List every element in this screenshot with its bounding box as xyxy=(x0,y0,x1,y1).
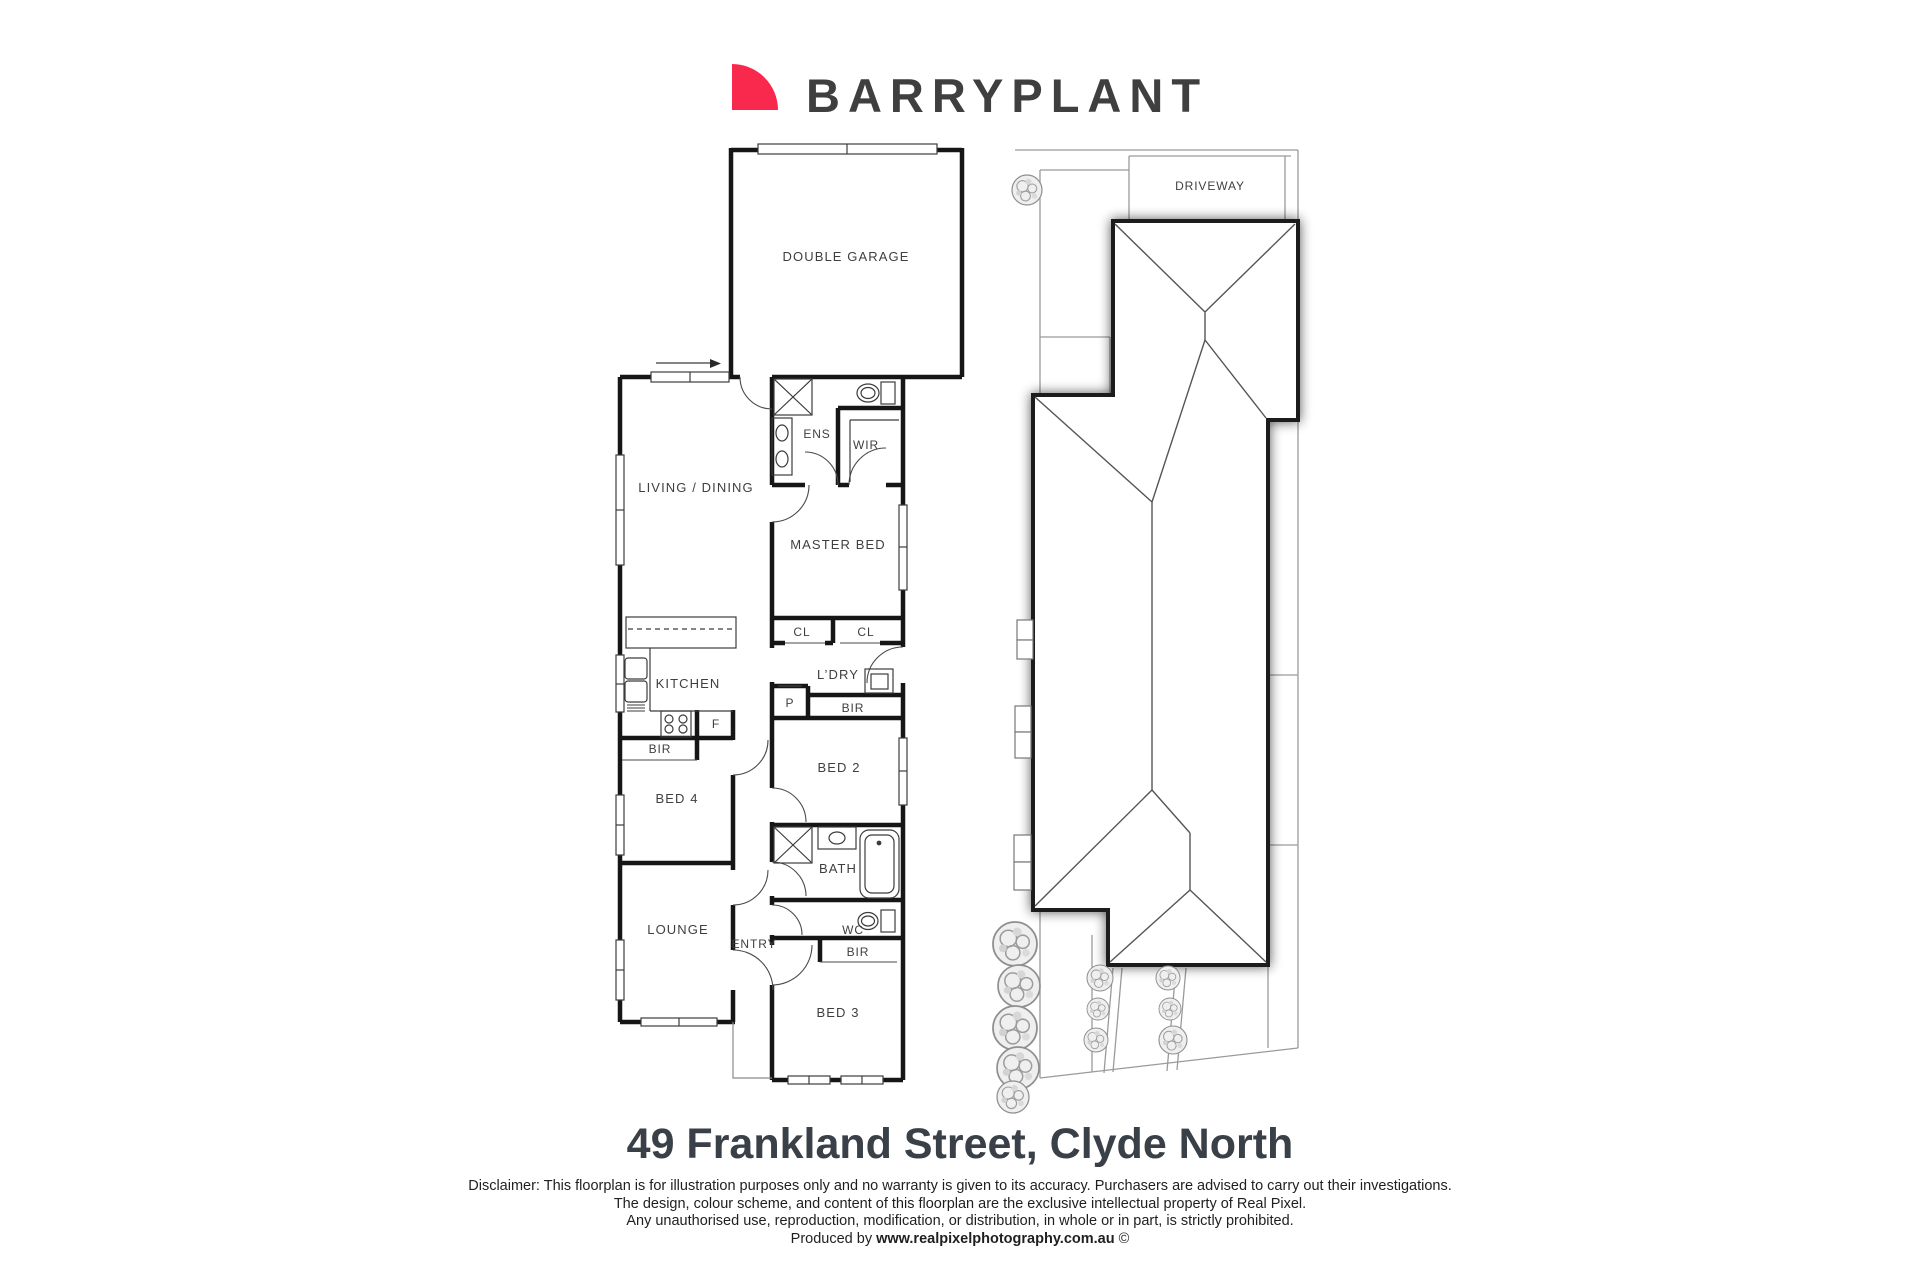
disclaimer-line-1: Disclaimer: This floorplan is for illust… xyxy=(0,1178,1920,1196)
cl2-label: CL xyxy=(857,625,874,639)
vanity-icon xyxy=(818,827,856,849)
logo-brand-text: BARRYPLANT xyxy=(806,69,1208,122)
produced-website: www.realpixelphotography.com.au xyxy=(876,1231,1115,1247)
brand-logo: BARRYPLANT xyxy=(732,64,1208,122)
produced-prefix: Produced by xyxy=(791,1231,876,1247)
house-roof-outline xyxy=(1033,221,1298,965)
bathroom-fixtures xyxy=(774,827,899,932)
entry-arrow-icon xyxy=(656,359,721,368)
plan-drawing: BARRYPLANT xyxy=(0,0,1920,1280)
bir-bed3-label: BIR xyxy=(847,945,870,959)
driveway-label: DRIVEWAY xyxy=(1175,179,1245,193)
floorplan-walls xyxy=(620,148,962,1080)
bir-bed2-label: BIR xyxy=(842,701,865,715)
site-plan: DRIVEWAY xyxy=(993,150,1298,1113)
logo-quarter-circle-icon xyxy=(732,64,778,110)
cl1-label: CL xyxy=(793,625,810,639)
fridge-label: F xyxy=(712,717,720,731)
tree-icon xyxy=(993,922,1037,966)
tree-icon xyxy=(1084,1028,1108,1052)
master-label: MASTER BED xyxy=(790,537,886,552)
ensuite-fixtures xyxy=(772,379,899,482)
lounge-label: LOUNGE xyxy=(647,922,709,937)
tree-icon xyxy=(1087,965,1113,991)
tree-icon xyxy=(1156,966,1180,990)
entry-label: ENTRY xyxy=(732,937,777,951)
ens-label: ENS xyxy=(803,427,830,441)
pantry-label: P xyxy=(786,696,795,710)
disclaimer-line-3: Any unauthorised use, reproduction, modi… xyxy=(0,1213,1920,1231)
disclaimer-line-2: The design, colour scheme, and content o… xyxy=(0,1196,1920,1214)
disclaimer-block: Disclaimer: This floorplan is for illust… xyxy=(0,1178,1920,1248)
side-unit-boxes xyxy=(1014,620,1033,890)
tree-icon xyxy=(1159,998,1181,1020)
tree-icon xyxy=(993,1006,1037,1050)
kitchen-sink-icon xyxy=(625,658,647,711)
bath-label: BATH xyxy=(819,861,857,876)
bed4-label: BED 4 xyxy=(655,791,698,806)
property-address-title: 49 Frankland Street, Clyde North xyxy=(0,1120,1920,1169)
wir-label: WIR xyxy=(853,438,879,452)
laundry-trough-icon xyxy=(865,669,893,693)
laundry-label: L’DRY xyxy=(817,667,859,682)
toilet-icon xyxy=(857,382,895,404)
tree-icon xyxy=(1159,1026,1187,1054)
vanity-icon xyxy=(772,418,792,475)
windows xyxy=(616,144,937,1084)
cooktop-icon xyxy=(661,711,691,737)
tree-icon xyxy=(998,965,1040,1007)
wc-label: WC xyxy=(842,923,864,937)
tree-icon xyxy=(1012,175,1042,205)
produced-by-line: Produced by www.realpixelphotography.com… xyxy=(0,1231,1920,1249)
floor-plan: DOUBLE GARAGE LIVING / DINING ENS WIR MA… xyxy=(616,144,962,1084)
kitchen-label: KITCHEN xyxy=(656,676,721,691)
shower-icon xyxy=(774,827,812,863)
tree-icon xyxy=(997,1081,1029,1113)
porch-edge xyxy=(733,1022,772,1078)
living-label: LIVING / DINING xyxy=(638,480,753,495)
shower-icon xyxy=(774,379,812,415)
bir-bed4-label: BIR xyxy=(649,742,672,756)
bed3-label: BED 3 xyxy=(816,1005,859,1020)
bed2-label: BED 2 xyxy=(817,760,860,775)
tree-icon xyxy=(1087,998,1109,1020)
floorplan-page: BARRYPLANT xyxy=(0,0,1920,1280)
bathtub-icon xyxy=(860,830,899,898)
produced-suffix: © xyxy=(1115,1231,1130,1247)
garage-label: DOUBLE GARAGE xyxy=(783,249,910,264)
